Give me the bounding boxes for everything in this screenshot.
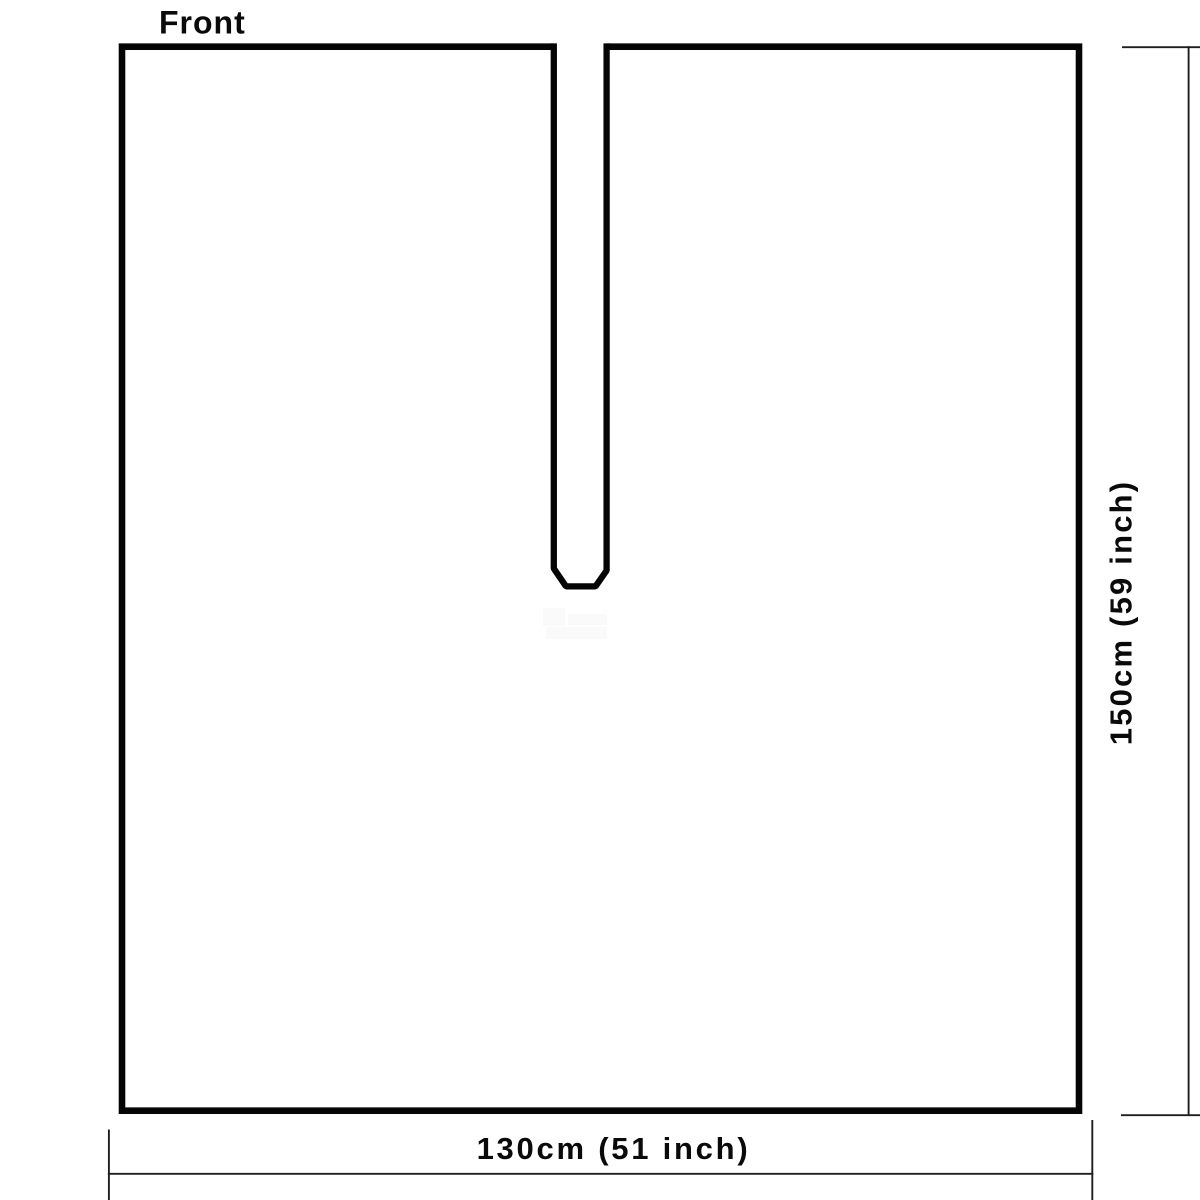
svg-text:130cm (51 inch): 130cm (51 inch): [477, 1131, 751, 1166]
svg-text:150cm (59 inch): 150cm (59 inch): [1104, 480, 1139, 746]
svg-text:Front: Front: [159, 5, 246, 41]
